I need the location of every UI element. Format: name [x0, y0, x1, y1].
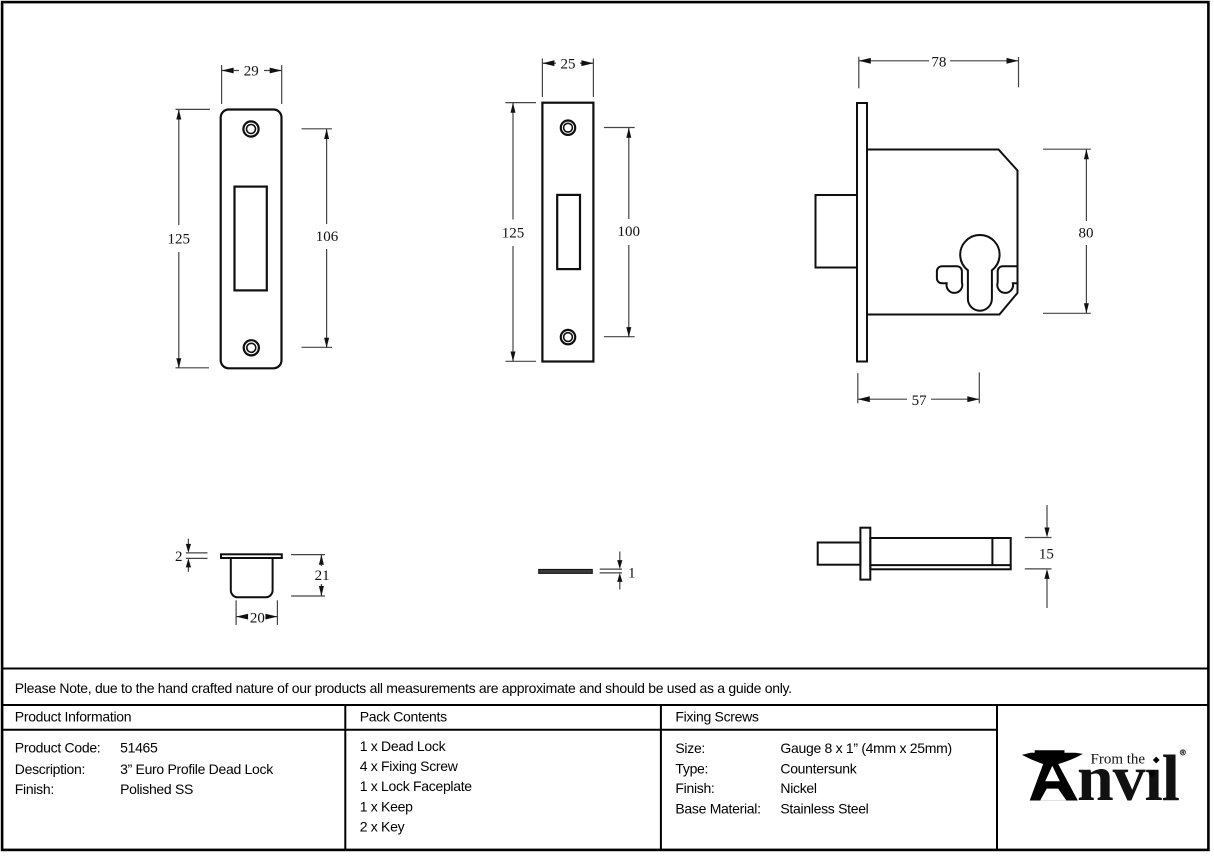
svg-text:Description:: Description: [15, 761, 85, 777]
svg-text:Pack Contents: Pack Contents [360, 709, 447, 725]
svg-text:2: 2 [175, 549, 183, 565]
svg-text:1 x Dead Lock: 1 x Dead Lock [360, 738, 447, 754]
svg-text:2 x Key: 2 x Key [360, 819, 405, 835]
svg-text:Product Code:: Product Code: [15, 739, 101, 755]
svg-text:3” Euro Profile Dead Lock: 3” Euro Profile Dead Lock [120, 761, 274, 777]
svg-text:20: 20 [250, 611, 265, 627]
svg-text:125: 125 [502, 225, 525, 241]
svg-text:15: 15 [1039, 546, 1054, 562]
svg-text:29: 29 [244, 64, 259, 80]
svg-text:Polished SS: Polished SS [120, 781, 193, 797]
svg-text:80: 80 [1079, 225, 1094, 241]
svg-text:100: 100 [618, 224, 641, 240]
svg-text:1: 1 [628, 566, 636, 582]
svg-text:21: 21 [315, 568, 330, 584]
svg-text:Product Information: Product Information [15, 709, 131, 725]
svg-text:1 x Lock Faceplate: 1 x Lock Faceplate [360, 778, 473, 794]
svg-text:Gauge 8 x 1” (4mm x 25mm): Gauge 8 x 1” (4mm x 25mm) [780, 740, 951, 756]
svg-text:25: 25 [561, 56, 576, 72]
svg-text:78: 78 [931, 54, 946, 70]
svg-text:Finish:: Finish: [675, 780, 714, 796]
svg-text:Countersunk: Countersunk [780, 760, 857, 776]
svg-text:Type:: Type: [675, 760, 708, 776]
svg-text:Please Note, due to the hand c: Please Note, due to the hand crafted nat… [15, 680, 792, 696]
svg-text:106: 106 [316, 229, 339, 245]
svg-text:1 x Keep: 1 x Keep [360, 798, 413, 814]
svg-text:Base Material:: Base Material: [675, 801, 760, 817]
svg-text:Nickel: Nickel [780, 780, 817, 796]
svg-text:4 x Fixing Screw: 4 x Fixing Screw [360, 758, 459, 774]
svg-text:nvıl: nvıl [1077, 742, 1180, 815]
svg-text:125: 125 [167, 231, 190, 247]
svg-text:Size:: Size: [675, 740, 705, 756]
svg-text:57: 57 [912, 393, 928, 409]
svg-text:51465: 51465 [120, 739, 158, 755]
svg-text:Finish:: Finish: [15, 781, 54, 797]
svg-text:Fixing Screws: Fixing Screws [675, 709, 759, 725]
svg-text:Stainless Steel: Stainless Steel [780, 801, 868, 817]
